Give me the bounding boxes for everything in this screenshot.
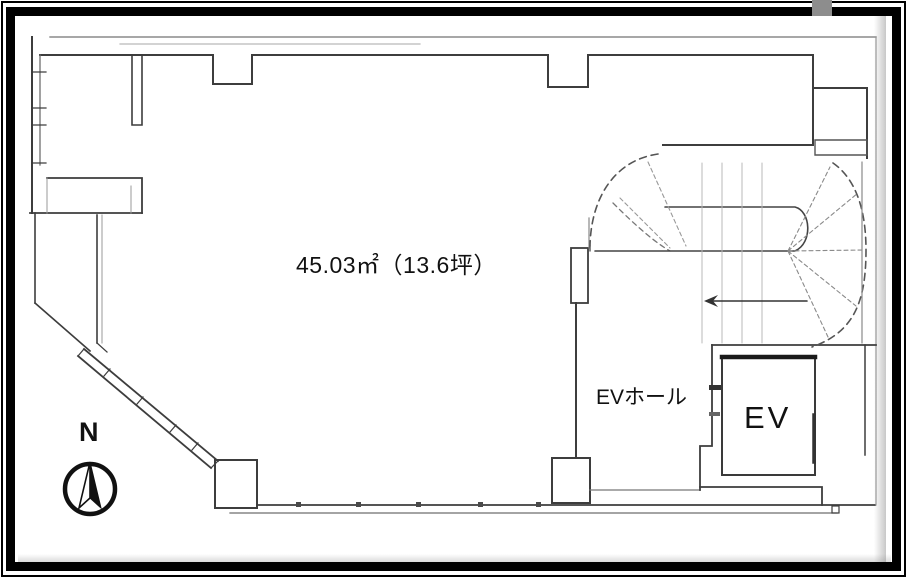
- scan-tab-artifact: [812, 0, 832, 16]
- diagonal-stub-a: [35, 303, 90, 351]
- area-label: 45.03㎡（13.6坪）: [296, 246, 497, 280]
- ev-hall-door-pillar: [571, 248, 588, 303]
- compass-icon: [65, 462, 115, 514]
- staircase: [590, 154, 866, 347]
- elevator-label: EV: [744, 400, 791, 436]
- stair-inner-arc-left: [613, 203, 670, 251]
- scan-shadow-right: [874, 16, 886, 562]
- left-box-top: [47, 178, 142, 213]
- pillar-south-ev: [552, 458, 590, 503]
- south-mullion: [416, 502, 421, 507]
- north-arrow-left-half: [79, 462, 90, 508]
- diagonal-stub-b: [97, 343, 107, 352]
- north-arrow-right-half: [90, 462, 101, 508]
- left-box-ticks: [47, 178, 131, 213]
- diagonal-window-inner: [78, 356, 211, 468]
- pillar-southwest: [215, 460, 257, 508]
- ev-hall-partition: [571, 218, 589, 458]
- stair-outer-arc-right: [812, 163, 866, 347]
- south-mullion: [536, 502, 541, 507]
- stair-fan-left: [620, 162, 686, 248]
- shaft-west-wall: [700, 345, 712, 490]
- south-wall-end-box: [832, 506, 839, 513]
- shaft-door-stub: [709, 412, 720, 416]
- diagonal-window-mullions: [78, 349, 218, 468]
- stair-straight-treads: [702, 163, 762, 343]
- topright-wall-step: [813, 88, 867, 158]
- shaft-door-stub: [709, 385, 723, 390]
- floor-plan-scan: 45.03㎡（13.6坪） EVホール EV N: [0, 0, 909, 580]
- stair-fan-right: [788, 167, 864, 337]
- top-wall: [40, 55, 813, 87]
- south-mullion: [478, 502, 483, 507]
- shaft-south-wall: [700, 487, 822, 505]
- stair-inner-landing: [595, 207, 808, 251]
- left-wall-ticks: [32, 72, 46, 163]
- south-mullion: [356, 502, 361, 507]
- top-wall-slot: [132, 55, 142, 125]
- scan-shadow-bottom: [18, 554, 891, 563]
- topright-pillar: [815, 140, 867, 155]
- diagonal-window-outer: [84, 349, 218, 461]
- floor-plan-drawing: [0, 0, 909, 580]
- compass-north-label: N: [79, 417, 99, 448]
- ev-hall-label: EVホール: [596, 381, 687, 411]
- south-mullion: [296, 502, 301, 507]
- stair-outer-arc-left: [590, 154, 658, 246]
